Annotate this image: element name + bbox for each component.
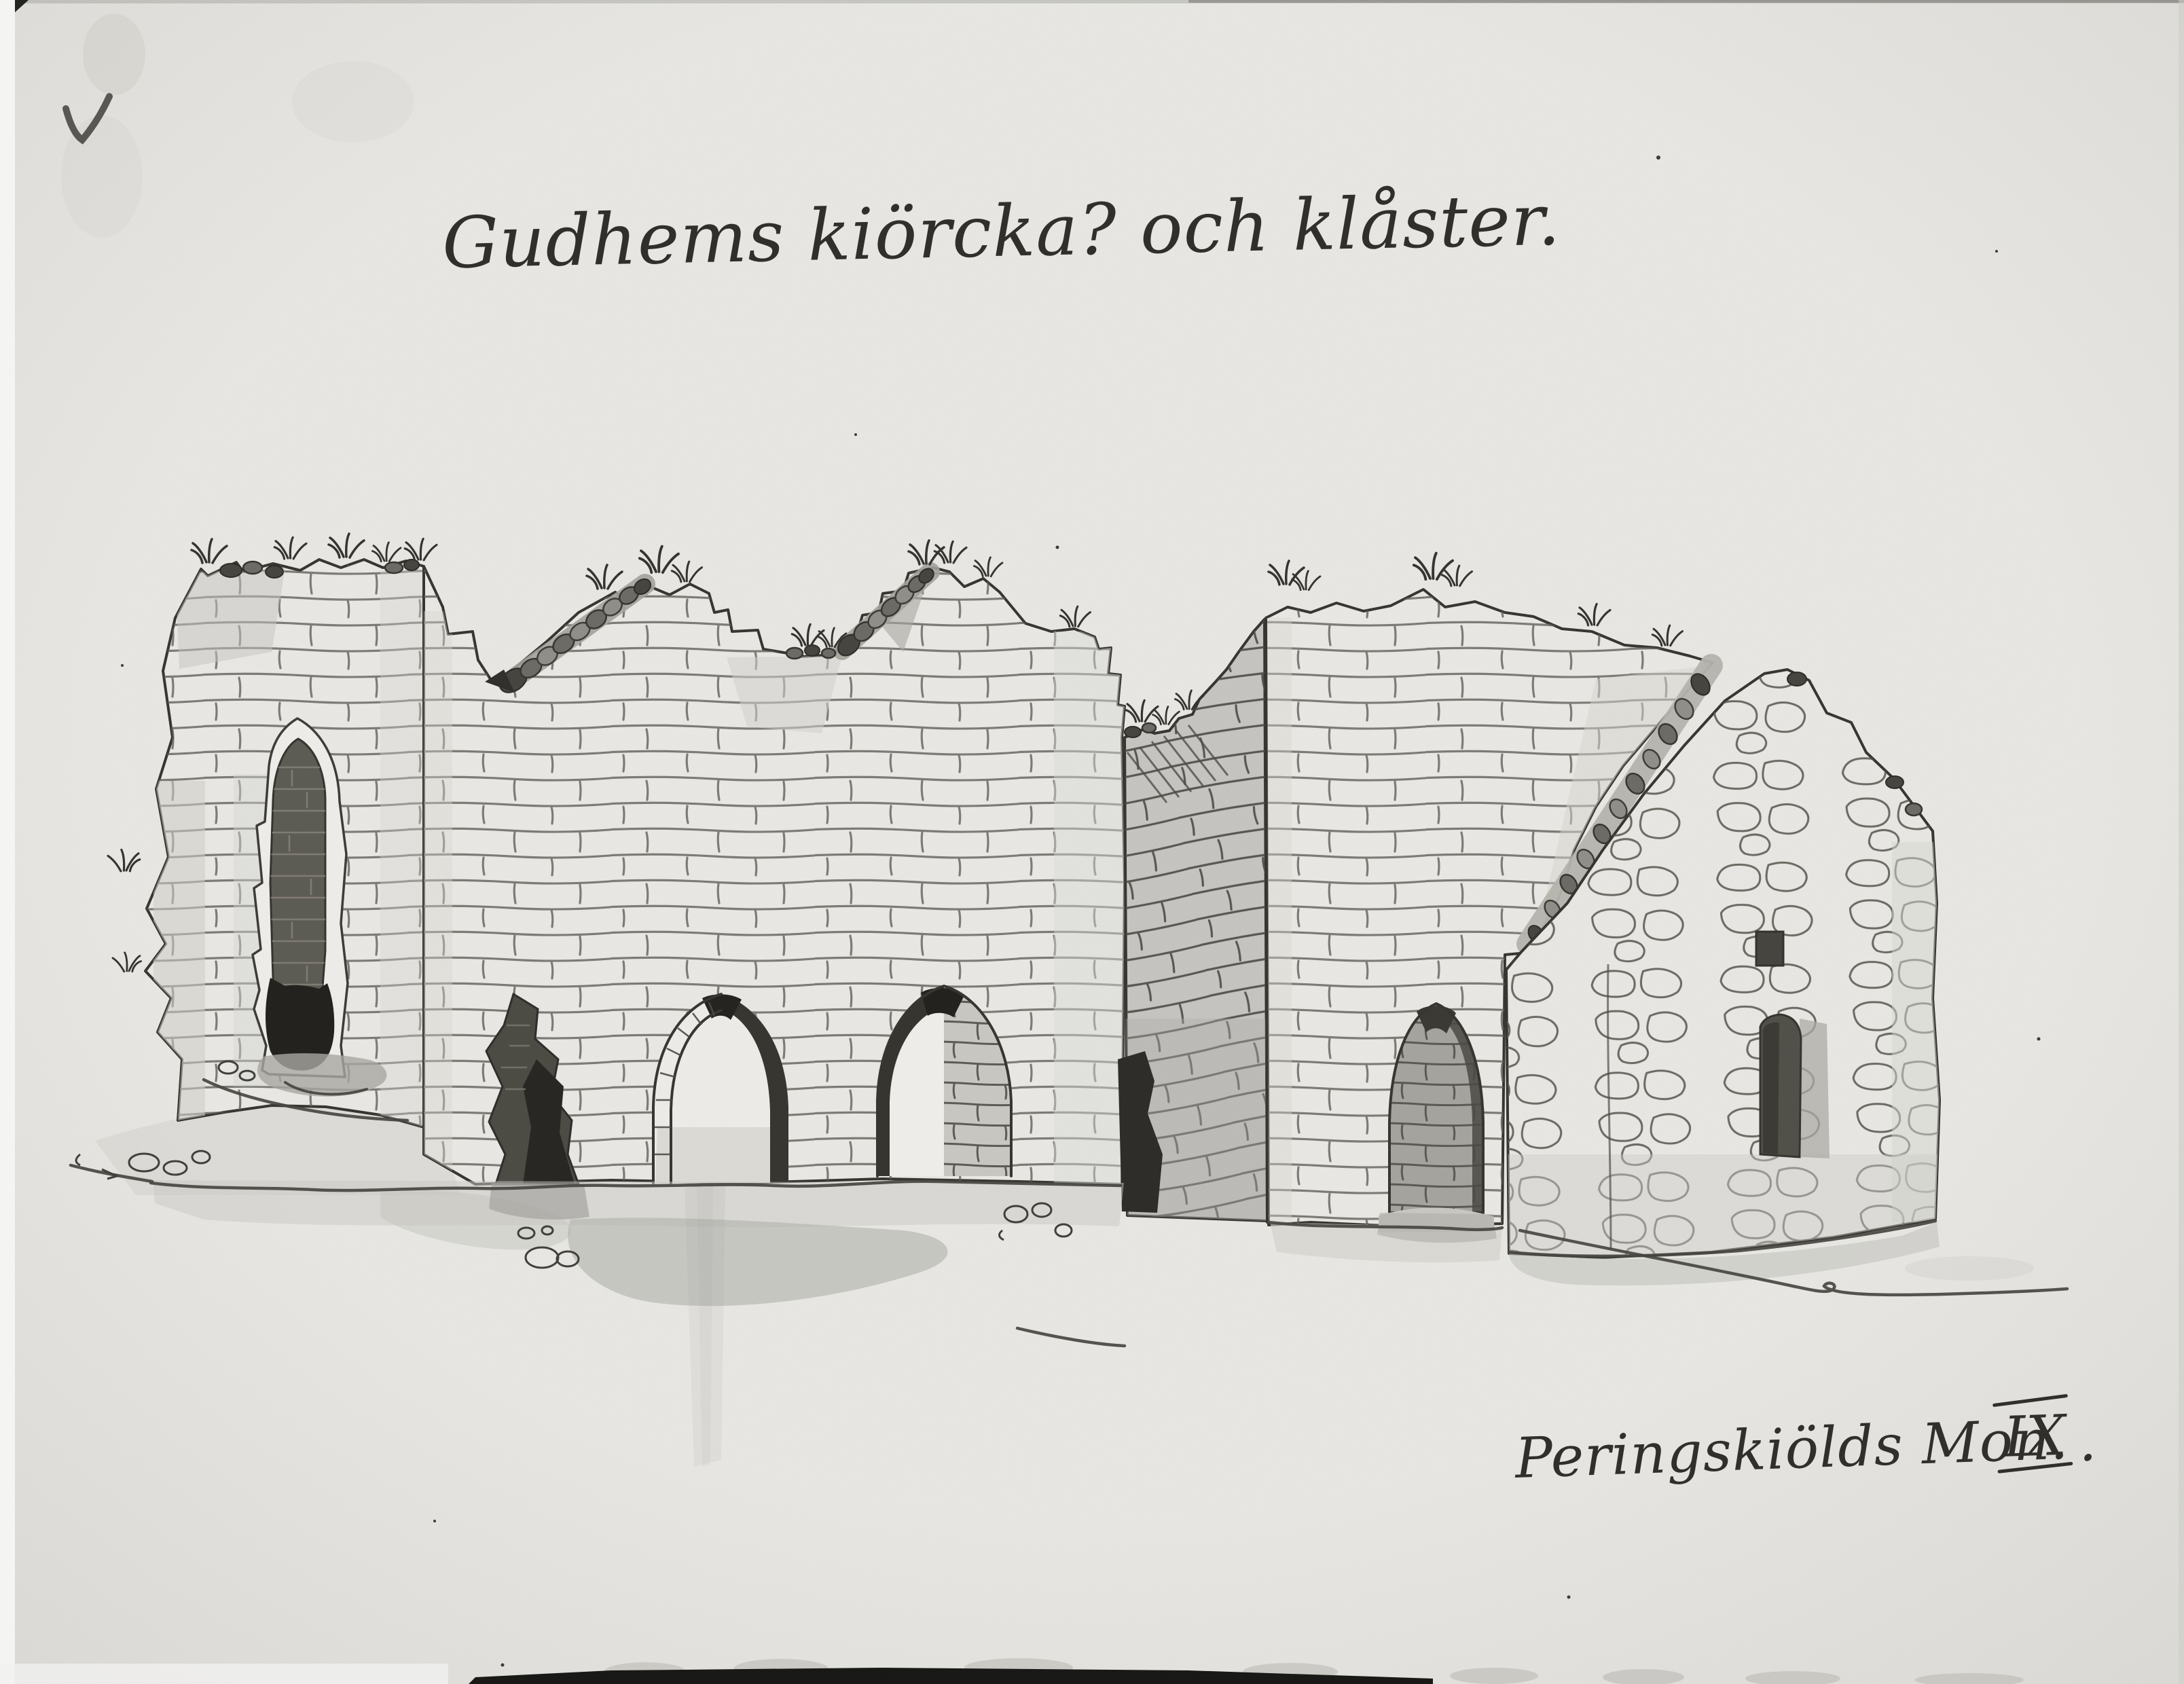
gudhem-ruin-drawing: Gudhems kiörcka? och klåster. Peringskiö…: [0, 0, 2184, 1684]
paper-grain-overlay: [0, 0, 2184, 1684]
scanned-drawing-page: Gudhems kiörcka? och klåster. Peringskiö…: [0, 0, 2184, 1684]
